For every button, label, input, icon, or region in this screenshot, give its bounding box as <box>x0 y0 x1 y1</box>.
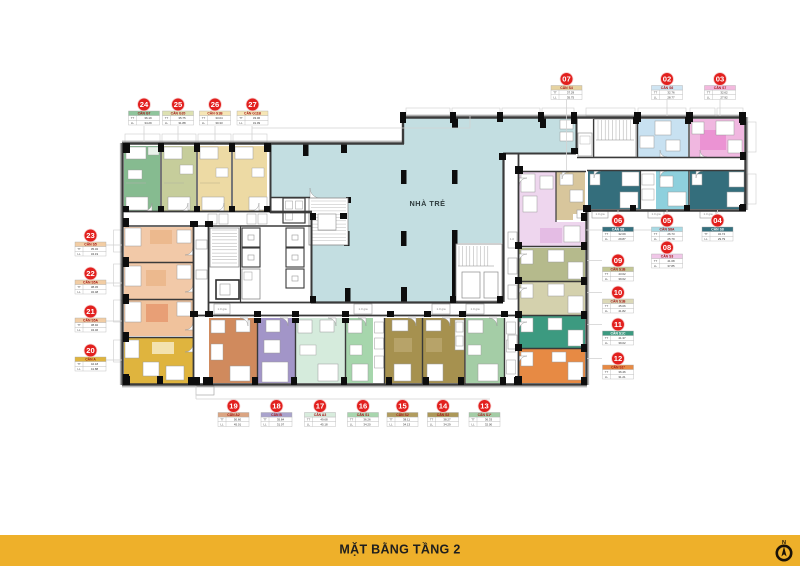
svg-text:TT: TT <box>220 418 224 422</box>
svg-text:LL: LL <box>202 121 206 125</box>
svg-text:CĂN S2: CĂN S2 <box>396 412 409 417</box>
svg-text:27: 27 <box>248 100 256 109</box>
svg-text:41.68: 41.68 <box>667 259 675 263</box>
svg-text:45.06: 45.06 <box>618 304 626 308</box>
svg-text:LL: LL <box>77 290 81 294</box>
svg-text:32.76: 32.76 <box>667 91 675 95</box>
svg-text:CĂN S2: CĂN S2 <box>437 412 450 417</box>
svg-text:37.29: 37.29 <box>567 91 575 95</box>
svg-text:31.07: 31.07 <box>277 422 285 426</box>
svg-text:CĂN S5: CĂN S5 <box>84 242 97 247</box>
svg-text:49.68: 49.68 <box>320 418 328 422</box>
svg-text:CĂN S8: CĂN S8 <box>612 227 625 232</box>
svg-text:32.69: 32.69 <box>618 232 626 236</box>
svg-text:34.20: 34.20 <box>363 422 371 426</box>
svg-text:09: 09 <box>614 256 622 265</box>
svg-text:30.33: 30.33 <box>215 121 223 125</box>
svg-text:TT: TT <box>77 247 81 251</box>
svg-text:TT: TT <box>605 232 609 236</box>
svg-text:CĂN S1*: CĂN S1* <box>478 412 492 417</box>
svg-text:26: 26 <box>211 100 219 109</box>
svg-text:CĂN S3: CĂN S3 <box>661 254 674 259</box>
svg-text:CĂN S1B: CĂN S1B <box>611 299 626 304</box>
svg-text:32.62: 32.62 <box>720 91 728 95</box>
svg-text:CĂN S1C: CĂN S1C <box>611 331 626 336</box>
svg-text:LL: LL <box>389 422 393 426</box>
svg-text:20: 20 <box>86 346 94 355</box>
svg-text:36.46: 36.46 <box>618 370 626 374</box>
svg-text:34.46: 34.46 <box>91 328 99 332</box>
svg-text:CĂN S7: CĂN S7 <box>714 85 727 90</box>
svg-text:N: N <box>782 540 786 546</box>
svg-text:LL: LL <box>307 422 311 426</box>
svg-text:CĂN B: CĂN B <box>271 412 282 417</box>
svg-text:05: 05 <box>663 216 672 225</box>
svg-text:37.85: 37.85 <box>667 264 675 268</box>
svg-text:TT: TT <box>131 116 135 120</box>
svg-text:31.21: 31.21 <box>618 375 626 379</box>
svg-text:38.27: 38.27 <box>443 418 451 422</box>
svg-text:LL: LL <box>77 367 81 371</box>
svg-text:1.0 gia: 1.0 gia <box>217 307 226 311</box>
svg-text:33.06: 33.06 <box>253 116 261 120</box>
svg-text:TT: TT <box>704 232 708 236</box>
svg-text:LL: LL <box>553 95 557 99</box>
svg-text:31.09: 31.09 <box>253 121 261 125</box>
svg-text:1.0 gia: 1.0 gia <box>470 307 479 311</box>
svg-text:31.88: 31.88 <box>178 121 186 125</box>
svg-text:TT: TT <box>707 91 711 95</box>
svg-text:1.0 gia: 1.0 gia <box>651 212 660 216</box>
svg-text:TT: TT <box>165 116 169 120</box>
svg-text:36.19: 36.19 <box>144 116 152 120</box>
svg-text:TT: TT <box>605 336 609 340</box>
svg-text:25.79: 25.79 <box>667 237 675 241</box>
svg-text:TT: TT <box>654 91 658 95</box>
svg-text:LL: LL <box>350 422 354 426</box>
svg-text:CĂN S4: CĂN S4 <box>560 85 573 90</box>
svg-text:29.79: 29.79 <box>718 237 726 241</box>
svg-text:LL: LL <box>605 309 609 313</box>
svg-text:17: 17 <box>316 402 324 411</box>
svg-text:CĂN G20: CĂN G20 <box>171 111 186 116</box>
svg-text:14: 14 <box>439 402 448 411</box>
svg-text:LL: LL <box>654 95 658 99</box>
svg-text:28.77: 28.77 <box>667 95 675 99</box>
svg-text:CĂN A3: CĂN A3 <box>314 412 327 417</box>
svg-text:1.0 gia: 1.0 gia <box>703 212 712 216</box>
svg-text:18: 18 <box>272 402 280 411</box>
svg-text:50.60: 50.60 <box>234 418 242 422</box>
svg-text:NHÀ TRẺ: NHÀ TRẺ <box>410 199 446 208</box>
svg-text:LL: LL <box>654 264 658 268</box>
svg-text:36.26: 36.26 <box>363 418 371 422</box>
svg-text:LL: LL <box>605 237 609 241</box>
svg-text:33.04: 33.04 <box>215 116 223 120</box>
svg-text:LL: LL <box>77 328 81 332</box>
svg-text:42.18: 42.18 <box>91 362 99 366</box>
svg-text:35.75: 35.75 <box>178 116 186 120</box>
svg-text:LL: LL <box>77 252 81 256</box>
svg-text:CĂN A2: CĂN A2 <box>227 412 240 417</box>
svg-text:38.92: 38.92 <box>91 323 99 327</box>
svg-text:TT: TT <box>77 362 81 366</box>
svg-text:41.37: 41.37 <box>618 336 626 340</box>
svg-text:32.48: 32.48 <box>91 290 99 294</box>
svg-text:TT: TT <box>605 272 609 276</box>
svg-text:TT: TT <box>605 370 609 374</box>
svg-text:24: 24 <box>140 100 149 109</box>
svg-text:13: 13 <box>480 402 488 411</box>
svg-text:LL: LL <box>605 277 609 281</box>
svg-text:LL: LL <box>239 121 243 125</box>
svg-text:CĂN S8: CĂN S8 <box>711 227 724 232</box>
svg-text:CĂN S1B: CĂN S1B <box>611 267 626 272</box>
svg-text:LL: LL <box>707 95 711 99</box>
svg-text:LL: LL <box>605 375 609 379</box>
svg-text:TT: TT <box>263 418 267 422</box>
svg-text:TT: TT <box>430 418 434 422</box>
svg-text:45.18: 45.18 <box>320 422 328 426</box>
svg-text:CĂN S5A: CĂN S5A <box>83 280 98 285</box>
svg-text:11: 11 <box>614 320 623 329</box>
svg-text:CĂN S8A: CĂN S8A <box>660 227 675 232</box>
svg-text:TT: TT <box>471 418 475 422</box>
svg-text:LL: LL <box>165 121 169 125</box>
svg-text:CĂN S6: CĂN S6 <box>661 85 674 90</box>
svg-text:TT: TT <box>654 259 658 263</box>
svg-text:LL: LL <box>704 237 708 241</box>
svg-text:TT: TT <box>77 285 81 289</box>
svg-text:29.87: 29.87 <box>618 237 626 241</box>
svg-text:34.13: 34.13 <box>403 422 411 426</box>
svg-text:34.29: 34.29 <box>443 422 451 426</box>
svg-text:41.82: 41.82 <box>618 309 626 313</box>
svg-text:23: 23 <box>86 231 94 240</box>
svg-text:19: 19 <box>229 402 237 411</box>
svg-text:34.19: 34.19 <box>91 252 99 256</box>
svg-text:16: 16 <box>359 402 367 411</box>
svg-text:39.02: 39.02 <box>618 341 626 345</box>
svg-text:25: 25 <box>174 100 183 109</box>
svg-text:1.0 gia: 1.0 gia <box>358 307 367 311</box>
svg-text:26.73: 26.73 <box>667 232 675 236</box>
svg-text:LL: LL <box>220 422 224 426</box>
svg-text:27.92: 27.92 <box>720 95 728 99</box>
svg-text:TT: TT <box>350 418 354 422</box>
svg-text:TT: TT <box>307 418 311 422</box>
svg-text:32.00: 32.00 <box>485 422 493 426</box>
svg-text:LL: LL <box>263 422 267 426</box>
svg-text:CĂN S1: CĂN S1 <box>357 412 370 417</box>
svg-text:08: 08 <box>663 243 671 252</box>
svg-text:22: 22 <box>86 269 94 278</box>
svg-text:03: 03 <box>716 75 724 84</box>
svg-text:MẶT BẰNG TẦNG 2: MẶT BẰNG TẦNG 2 <box>339 542 460 557</box>
svg-text:LL: LL <box>131 121 135 125</box>
svg-text:LL: LL <box>471 422 475 426</box>
svg-text:TT: TT <box>389 418 393 422</box>
svg-text:41.88: 41.88 <box>91 367 99 371</box>
svg-text:34.29: 34.29 <box>144 121 152 125</box>
svg-text:TT: TT <box>202 116 206 120</box>
svg-text:38.11: 38.11 <box>403 418 410 422</box>
svg-text:LL: LL <box>605 341 609 345</box>
svg-text:1.0 gia: 1.0 gia <box>595 212 604 216</box>
svg-text:TT: TT <box>553 91 557 95</box>
svg-text:LL: LL <box>654 237 658 241</box>
svg-text:1.0 gia: 1.0 gia <box>436 307 445 311</box>
svg-text:LL: LL <box>430 422 434 426</box>
svg-text:CĂN G1B: CĂN G1B <box>207 111 223 116</box>
svg-text:36.33: 36.33 <box>485 418 493 422</box>
svg-text:02: 02 <box>663 75 671 84</box>
svg-text:21: 21 <box>86 307 95 316</box>
svg-text:07: 07 <box>562 75 570 84</box>
svg-text:CĂN S1*: CĂN S1* <box>611 365 625 370</box>
svg-text:04: 04 <box>713 216 722 225</box>
svg-text:CĂN A: CĂN A <box>85 357 96 362</box>
svg-text:TT: TT <box>654 232 658 236</box>
svg-text:43.62: 43.62 <box>618 272 626 276</box>
svg-text:39.62: 39.62 <box>618 277 626 281</box>
svg-text:35.75: 35.75 <box>567 95 575 99</box>
svg-text:35.84: 35.84 <box>277 418 285 422</box>
svg-text:CĂN G7: CĂN G7 <box>138 111 151 116</box>
svg-text:TT: TT <box>605 304 609 308</box>
svg-text:1.0: 1.0 <box>510 237 515 241</box>
svg-text:45.01: 45.01 <box>234 422 242 426</box>
svg-text:38.45: 38.45 <box>91 285 99 289</box>
svg-text:12: 12 <box>614 354 622 363</box>
svg-text:35.32: 35.32 <box>91 247 99 251</box>
svg-text:32.74: 32.74 <box>718 232 726 236</box>
svg-text:CĂN G11B: CĂN G11B <box>244 111 262 116</box>
svg-text:15: 15 <box>398 402 407 411</box>
svg-text:CĂN S5A: CĂN S5A <box>83 318 98 323</box>
svg-text:TT: TT <box>239 116 243 120</box>
svg-text:10: 10 <box>614 288 622 297</box>
svg-text:TT: TT <box>77 323 81 327</box>
svg-text:06: 06 <box>614 216 622 225</box>
